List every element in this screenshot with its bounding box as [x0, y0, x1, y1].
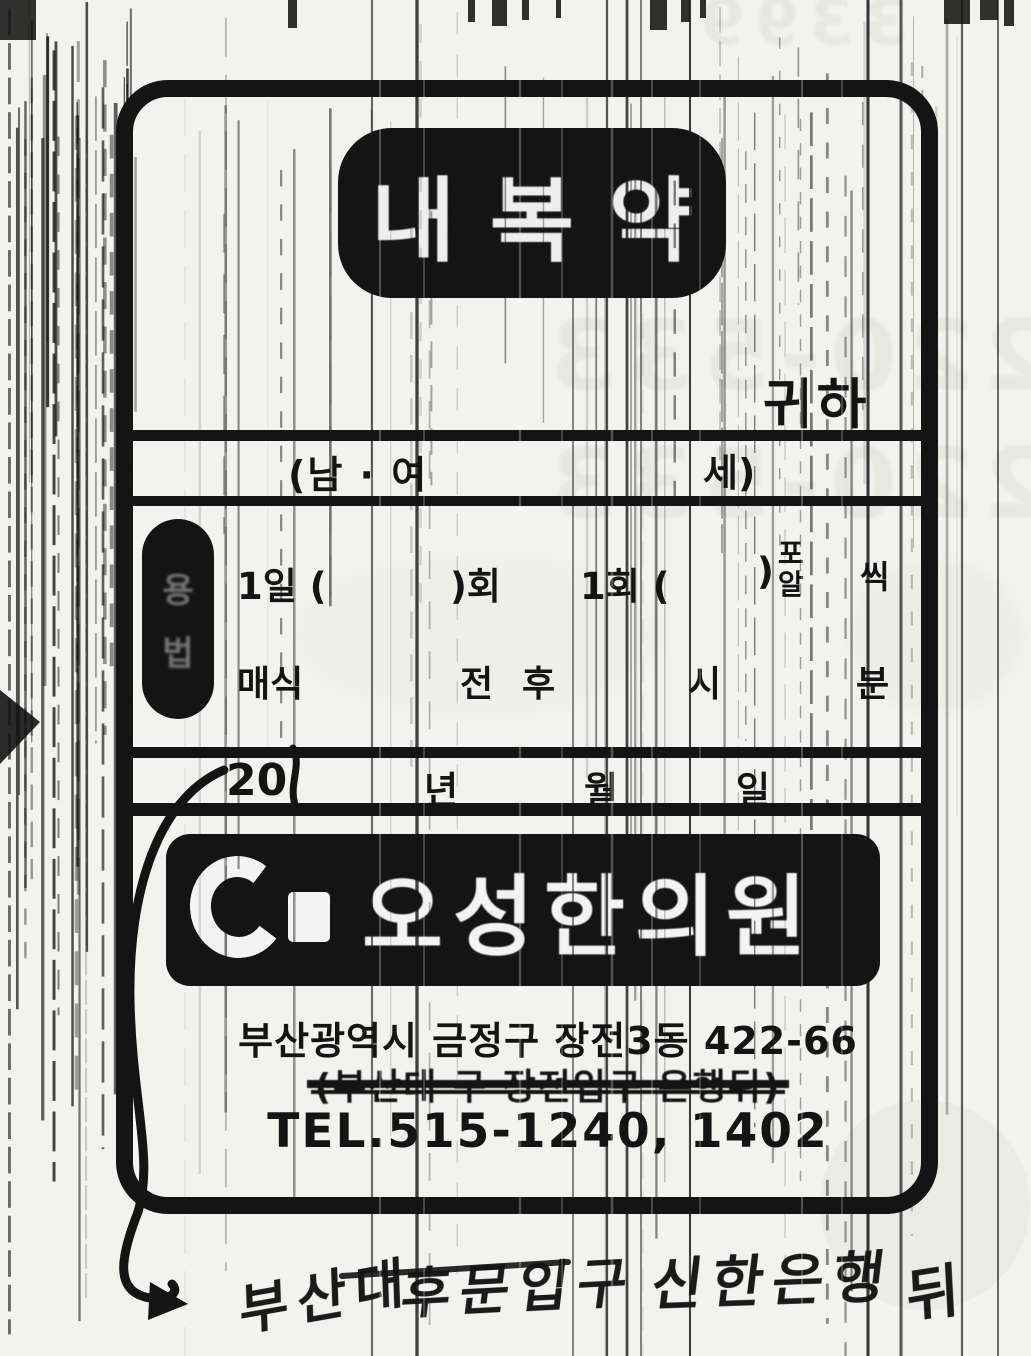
dose-unit-stack: ) 포 알 [757, 538, 804, 601]
meal-minute-label: 분 [856, 655, 889, 707]
telephone-icon-dot [288, 892, 330, 942]
meal-hour-label: 시 [688, 655, 721, 707]
telephone-icon [183, 850, 292, 964]
meal-after-label: 후 [522, 655, 555, 707]
meal-every-label: 매식 [237, 655, 303, 707]
dose-each-label: 씩 [860, 552, 889, 598]
usage-label-char: 용 [162, 563, 193, 612]
dose-unit-pill: 알 [778, 569, 804, 600]
scanned-medication-envelope: 3399 0220-533 0220-533 내복약 귀하 (남 · 여 세) … [0, 0, 1031, 1356]
rule-line [131, 496, 923, 506]
printed-form: 내복약 귀하 (남 · 여 세) 용 법 1일 ( )회 1회 ( ) 포 알 … [0, 0, 1031, 1356]
rule-line [131, 803, 923, 816]
clinic-name-plate: 오성한의원 [166, 834, 880, 986]
medication-type-label: 내복약 [337, 147, 727, 280]
usage-label-char: 법 [162, 626, 193, 675]
clinic-old-address-text: (부산대 구 장전입구 은행뒤) [315, 1058, 782, 1110]
dose-times-label: )회 [450, 556, 501, 610]
recipient-honorific: 귀하 [763, 360, 870, 439]
clinic-phone: TEL.515-1240, 1402 [190, 1104, 906, 1159]
handwritten-word: 후문입구 [397, 1238, 641, 1330]
medication-type-stamp: 내복약 [338, 128, 726, 298]
handwritten-word: 신한은행 [647, 1232, 899, 1322]
clinic-old-address-struck: (부산대 구 장전입구 은행뒤) [190, 1058, 906, 1110]
dose-unit-packet: 포 [778, 538, 804, 569]
clinic-address: 부산광역시 금정구 장전3동 422-66 [190, 1010, 906, 1065]
dose-unit-close-paren: ) [757, 550, 774, 593]
age-field-label: 세) [703, 442, 755, 497]
dose-per-time-label: 1회 ( [580, 556, 670, 610]
dose-per-day-label: 1일 ( [237, 556, 327, 610]
meal-before-label: 전 [460, 655, 493, 707]
rule-line [131, 430, 923, 441]
handwritten-word: 뒤 [904, 1241, 970, 1335]
usage-section-label: 용 법 [142, 519, 214, 719]
gender-field-label: (남 · 여 [288, 444, 428, 499]
clinic-name: 오성한의원 [362, 847, 817, 974]
date-year-prefix: 20 [226, 755, 287, 806]
